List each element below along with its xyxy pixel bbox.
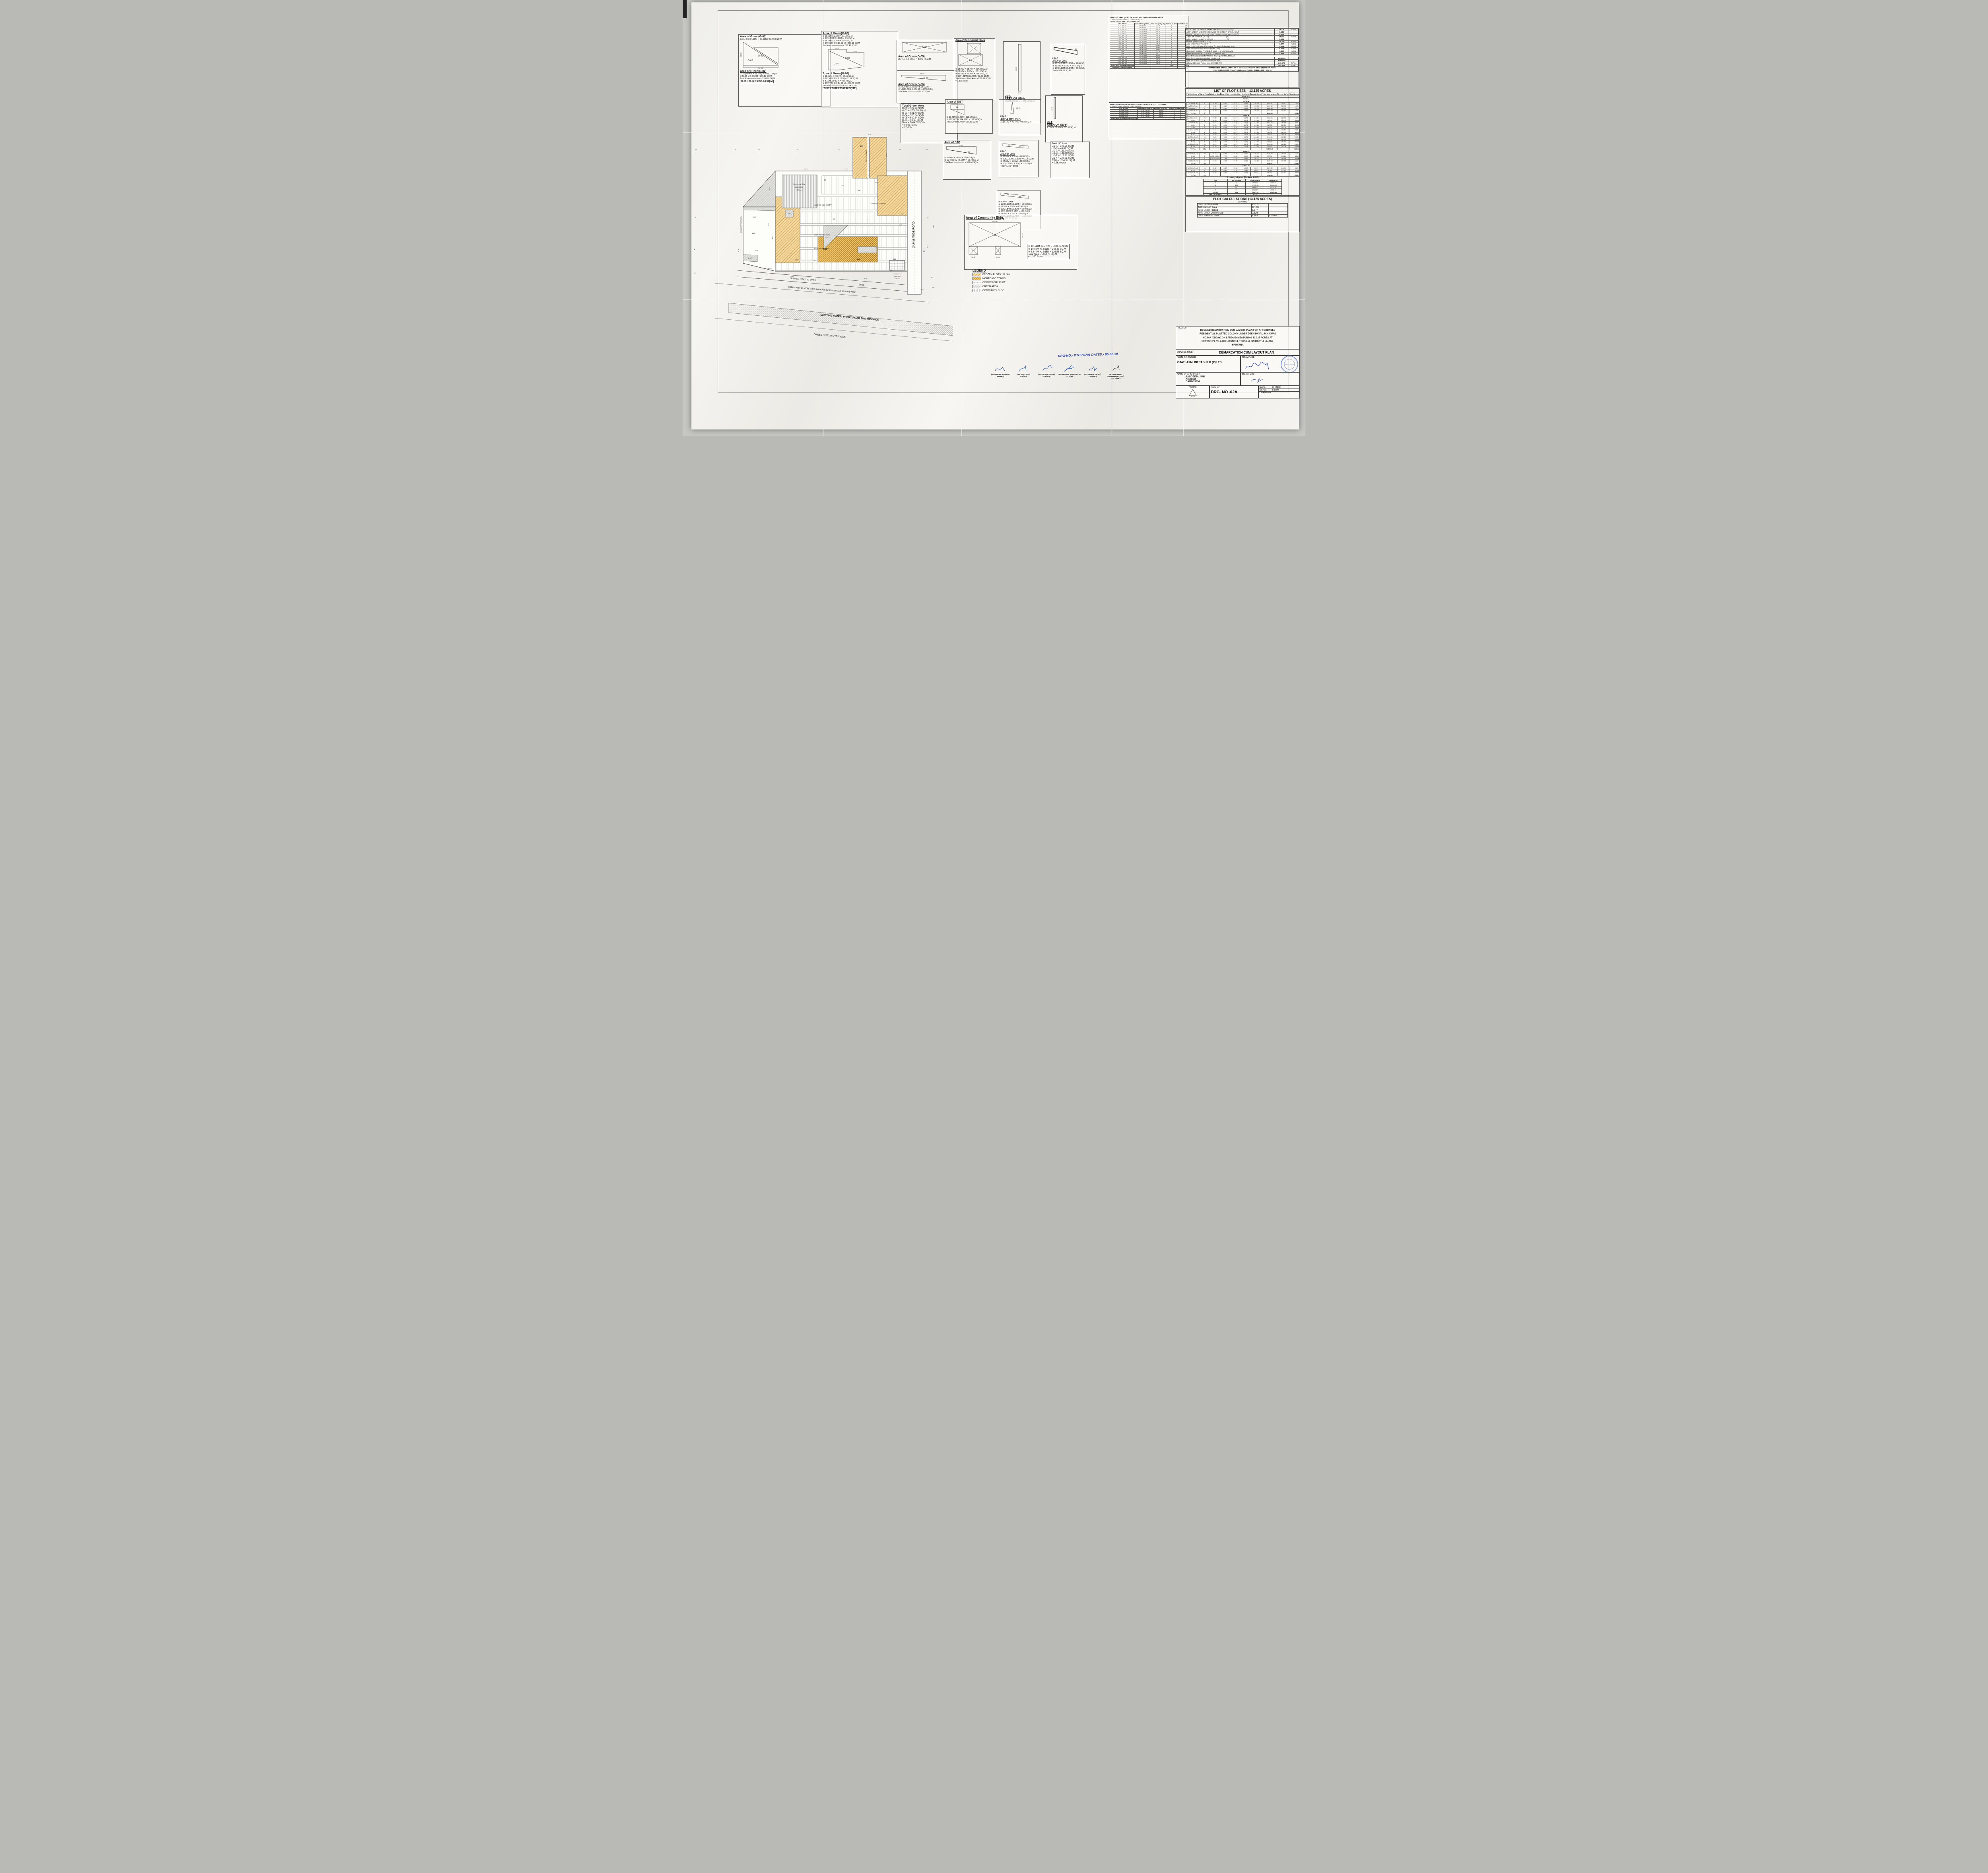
plan-label: 5	[695, 216, 697, 218]
legend-label: MORTGAGE 37 NOS.	[982, 278, 1006, 280]
g05-diagram: G-05	[898, 41, 950, 54]
signatory-role: CTP(HR.)	[1081, 375, 1104, 377]
mortgaged-table: S.No of PlotsSize of Plots (in MTS.)Plot…	[1110, 107, 1188, 120]
g03-title: Area of Green(G-03)	[823, 32, 897, 35]
plot-calculations-panel: PLOT CALCULATIONS (13.125 ACRES) (In Acr…	[1185, 196, 1300, 232]
plan-label: 14/2	[857, 258, 860, 260]
svg-text:36.84: 36.84	[959, 145, 963, 146]
green-g03-g04-annotation: Area of Green(G-03) ① 19.01M X 2.64M = 5…	[821, 31, 898, 107]
frozen-swatch	[973, 273, 981, 276]
plan-label: 8/1	[829, 203, 832, 205]
commercial-block-annotation: Area of Commercial Block 01 03 ① 18.90M …	[954, 38, 995, 101]
plan-label: 6 KARAM REVENUE RASTA	[740, 216, 742, 233]
text-line: Total =123.04 SQ.M	[1000, 165, 1037, 167]
plan-label: 1.350 Acres	[796, 189, 803, 191]
drawing-title-label: DRAWING TITLE:-	[1177, 351, 1194, 354]
ud-f-annotation: 86.55 UD-F AREA OF UD-F 2.75M X 86.55M =…	[1045, 95, 1083, 142]
ud-a-diagram: 60.35 5.03	[1005, 43, 1036, 94]
legend-item-mortgage: MORTGAGE 37 NOS.	[973, 277, 1024, 280]
green-swatch	[973, 285, 981, 288]
community-bldg-annotation: Area of Community Bldg. 01 02 03 111.48 …	[964, 215, 1077, 270]
svg-text:02: 02	[1075, 48, 1077, 50]
text-line: Total Services Area = 239.86 SQ.M	[947, 121, 991, 123]
ud-c-annotation: 0103 UD-C AREA OF UD-C ① 10.05M X 3.57M)…	[999, 140, 1039, 177]
g03-g04-diagram: G-03 G-04 19.01 33.69	[823, 47, 870, 72]
commercial-swatch	[973, 281, 981, 284]
signature-squiggle	[1062, 364, 1077, 373]
text-line: REVISED DEMARCATION CUM LAYOUT PLAN FOR …	[1176, 329, 1299, 332]
plot-summary-table: TypeNo. of PlotsArea in Sq.mArea Sq.ydA3…	[1203, 179, 1282, 196]
stp-diagram: 01 02 36.84	[944, 144, 980, 156]
phery-road-band	[728, 303, 953, 336]
svg-text:45.70: 45.70	[1021, 233, 1023, 238]
plan-label: UGT	[788, 213, 791, 215]
approval-signatory: (OM PARKASH)ATP(HQ)	[1012, 364, 1035, 389]
plan-label: 25	[695, 149, 697, 151]
svg-text:03: 03	[1019, 145, 1021, 147]
plan-label: 6/2	[899, 224, 902, 226]
drawn-by-label: DRAWN BY.	[1259, 392, 1299, 394]
plan-label: GREEN BELT 30 MTRS WIDE	[813, 333, 846, 338]
plan-label: 21	[926, 149, 928, 151]
green-g06-annotation: G-06 33.20 Area of Green(G-06) ① 33.20 M…	[897, 71, 958, 103]
date-label: DATE.	[1260, 386, 1266, 389]
signatory-role: AD(HQ)	[989, 375, 1012, 377]
legend: LEGEND FROZEN PLOTS 119 Nos. MORTGAGE 37…	[971, 268, 1025, 301]
text-line: = 0.263 Acres	[1052, 162, 1088, 164]
ud-f-title: AREA OF UD-F	[1047, 124, 1081, 126]
plan-label: 13/1	[825, 236, 829, 238]
svg-text:G-06: G-06	[924, 77, 928, 80]
mortgaged-area-table: MORTGAGED AREA (15 %) OF TOTAL SALEABLE …	[1109, 103, 1188, 139]
approval-signatory: (K. MAKRAND PANDURANG, IAS)DTCP(HR.)	[1104, 364, 1127, 389]
mortgage-swatch	[973, 277, 981, 280]
table-row: S.No of PlotsSize of Plots (in MTS.)Plot…	[1110, 108, 1189, 110]
plan-label: 9.0 METER WIDE ROAD	[814, 234, 830, 236]
company-stamp: VIJAYLAXMI INFRABUILD PRIVATE LIMITED ★ …	[1280, 355, 1299, 373]
svg-text:G-04: G-04	[834, 63, 839, 65]
commercial-diagram: 01 03	[955, 42, 989, 67]
plan-label: 9.0 METER WIDE ROAD	[814, 204, 830, 206]
plan-label: 12/2	[795, 259, 799, 261]
scanned-layout-plan-sheet: 25581525212223252110/110/211/111/2101120…	[683, 0, 1305, 436]
g02-title: Area of Green(G-02)	[740, 70, 829, 73]
plan-label: 21	[932, 286, 934, 288]
plan-label: 1320.19 SQ.M	[894, 276, 901, 277]
stp-annotation: Area of STP 01 02 36.84 ① 36.84M X 6.45M…	[943, 140, 991, 180]
plan-label: COMMERCIAL	[893, 273, 901, 275]
plan-label: 3/2	[841, 185, 844, 187]
plan-label: 57.06	[765, 273, 768, 275]
g05-formula: 35.45M X 14.65M = 519.34 SQ.M	[898, 58, 956, 60]
total-ud-area-annotation: Total UD Area UD-A = 303.56 SQ.MUD-B = 4…	[1050, 142, 1090, 178]
architect-label: NAME OF ARCHITECT	[1177, 373, 1239, 375]
plan-label: WIDE	[859, 284, 865, 286]
plan-label: 8.0 METER WIDE ROAD	[814, 248, 830, 249]
architect-lines: SANGEETA JAINArchitectCA/90/13234	[1186, 376, 1240, 383]
svg-text:33.69: 33.69	[853, 51, 858, 52]
text-line: ① 111.48M X45.70M = 5094.64 SQ.M	[1028, 245, 1068, 248]
plan-label: 111.48	[804, 168, 808, 170]
plan-label: 22	[797, 149, 799, 151]
text-line: YOJNA (DDJAY) ON LAND AD-MEASURING 13.12…	[1176, 336, 1299, 340]
table-row: Area under Commercial0.326	[1198, 212, 1287, 215]
commercial-lines: ① 18.90M X 18.74M = 354.19 SQ.M② 38.02M …	[955, 68, 994, 82]
architect-signature	[1249, 376, 1269, 384]
g06-title: Area of Green(G-06)	[898, 83, 956, 86]
signature-squiggle	[1039, 364, 1054, 373]
approval-signatory: (VIJENDER SINGH)DTP(HQ)	[1035, 364, 1058, 389]
g01-diagram: G-01 G-02 58.06 55.32	[740, 41, 784, 69]
plan-label: 10/1	[753, 216, 756, 218]
plot-sizes-table-panel: LIST OF PLOT SIZES – 13.125 ACRES Plot N…	[1185, 88, 1300, 196]
plan-label: 4/2	[875, 182, 878, 184]
table-row: PROPOSED FREEZED AREA50.31%	[1110, 67, 1189, 69]
plan-label: 62.03	[920, 289, 924, 291]
plot-sizes-title: LIST OF PLOT SIZES – 13.125 ACRES	[1186, 89, 1299, 93]
owner-label: NAME OF OWNER	[1177, 356, 1239, 359]
svg-text:58.06: 58.06	[758, 67, 763, 69]
signature-squiggle	[1085, 364, 1100, 373]
svg-text:02: 02	[958, 111, 961, 113]
svg-text:19.01: 19.01	[835, 47, 839, 49]
svg-text:01: 01	[1058, 48, 1060, 50]
freezed-table: S.No of PlotsSize of Plots (in MTS.)Plot…	[1110, 23, 1188, 69]
title-block: PROJECT:- REVISED DEMARCATION CUM LAYOUT…	[1176, 326, 1300, 398]
stp-title: Area of STP	[944, 141, 990, 144]
table-row: Area under Plotted6.377	[1198, 209, 1287, 212]
green-g01-g02-annotation: Area of Green(G-01) G-01=1/2(34.09M X 30…	[738, 34, 831, 107]
plan-label: 11/1	[755, 250, 758, 252]
svg-text:33.20: 33.20	[920, 73, 924, 75]
drg-label: DRG. NO.	[1211, 387, 1257, 389]
signatory-name: (K. MAKRAND PANDURANG, IAS)	[1104, 373, 1127, 377]
svg-text:03: 03	[997, 250, 999, 252]
total-ud-lines: UD-A = 303.56 SQ.MUD-B = 43.82 SQ.MUD-C …	[1052, 145, 1088, 164]
community-diagram: 01 02 03 111.48 45.70 16.62 8.64	[966, 220, 1025, 259]
svg-text:55.32: 55.32	[740, 52, 742, 57]
text-line: ② 16.62M X14.65M = 243.48 SQ.M	[1028, 248, 1068, 251]
legend-label: COMMUNITY BLDG.	[982, 289, 1005, 292]
legend-label: GREEN AREA	[982, 286, 998, 288]
svg-text:60.35: 60.35	[1015, 66, 1017, 71]
svg-text:8.64: 8.64	[996, 256, 1000, 258]
scale-label: SCALE.	[1260, 389, 1268, 391]
drawing-title: DEMARCATION CUM LAYOUT PLAN	[1194, 351, 1299, 354]
community-lines: ① 111.48M X45.70M = 5094.64 SQ.M② 16.62M…	[1027, 244, 1070, 259]
plan-label: 25	[899, 149, 901, 151]
svg-text:16.62: 16.62	[971, 256, 976, 258]
scheme-table: PLOT AREA OF NEW SCHEME APPLIED---------…	[1186, 28, 1299, 67]
owner-name: VIJAYLAXMI INFRABUILD (P) LTD.	[1177, 361, 1239, 364]
architect-signature-label: SIGNATURE	[1242, 373, 1299, 375]
text-line: HARYANA	[1176, 344, 1299, 347]
plan-label: 20	[931, 276, 933, 278]
g06-lines: ① 33.20 M X 0.26 M) = 8.63 SQ.M② 1/2(33.…	[898, 86, 956, 93]
ud-d-diagram: 0103	[998, 191, 1033, 200]
plan-label: 67.06	[790, 276, 794, 277]
g03-lines: ① 19.01M X 2.64M = 50.19 SQ.M② 1/2(4.33M…	[823, 35, 897, 47]
signature-squiggle	[1108, 364, 1123, 373]
legend-item-green: GREEN AREA	[973, 285, 1024, 288]
table-row: S.No of PlotsSize of Plots (in MTS.)Plot…	[1110, 23, 1189, 25]
plan-label: 9.0 M. WIDE ROAD	[866, 150, 867, 162]
svg-text:03: 03	[969, 60, 972, 62]
legend-item-commercial: COMMERCIAL PLOT	[973, 281, 1024, 284]
plan-label: 4/1	[858, 189, 860, 191]
ud-f-formula: 2.75M X 86.55M = 238.01 SQ.M	[1047, 126, 1081, 129]
plan-label: 11	[923, 250, 925, 252]
svg-text:02: 02	[968, 151, 970, 153]
scheme-area-table: PLOT AREA OF NEW SCHEME APPLIED---------…	[1185, 28, 1299, 87]
ud-b-annotation: 21.17 UD-B AREA OF UD-B 1/2(4.14M X 21.1…	[999, 99, 1041, 135]
plan-label: 54//	[823, 248, 827, 251]
plot-calc-table: Total Scheme Area13.125Net Planned Area1…	[1197, 203, 1287, 218]
legend-label: FROZEN PLOTS 119 Nos.	[982, 274, 1011, 276]
text-line: Total Area -------------- = 91.13 SQ.M	[898, 91, 956, 93]
plan-label: 15	[694, 272, 696, 274]
ugt-title: Area of UGT	[947, 101, 991, 103]
signature-squiggle	[993, 364, 1008, 373]
site-plan: 25581525212223252110/110/211/111/2101120…	[691, 131, 953, 348]
green-g05-annotation: G-05 Area of Green(G-05) 35.45M X 14.65M…	[897, 40, 958, 71]
plan-label: 25	[735, 149, 737, 151]
svg-text:86.55: 86.55	[1051, 107, 1053, 111]
stp-lines: ① 36.84M X 6.45M = 237.62 SQ.M② 1/2 (36.…	[944, 157, 990, 164]
plan-label: 1-KARAM REVENUE RASTA	[870, 202, 886, 204]
community-title: Area of Community Bldg.	[966, 216, 1076, 220]
svg-text:02: 02	[972, 250, 975, 252]
plan-label: 35.21	[772, 236, 773, 239]
ud-b-formula: 1/2(4.14M X 21.17M) =43.82 SQ.M	[1000, 121, 1039, 123]
plan-label: 15/2	[893, 258, 897, 260]
ugt-lines: ① 16.35M X 7.31M = 119.52 SQ.M② 1/2(16.3…	[947, 116, 991, 123]
plan-label: 3.35	[933, 225, 934, 228]
text-line: Total Area ---------------- = 333.40 SQ.…	[944, 161, 990, 164]
svg-text:01: 01	[959, 148, 961, 150]
table-row: AREA IN ACRES6.377	[1203, 194, 1282, 196]
g02-lines: ① 1/2(58.06M X 51.78M) = 1503.17 SQ.M② 5…	[740, 73, 829, 80]
svg-text:01: 01	[994, 235, 996, 237]
approval-signatory: (JITENDER SIHAG)CTP(HR.)	[1081, 364, 1104, 389]
signatory-role: ATP(HQ)	[1012, 375, 1035, 377]
plan-label: 47.14	[926, 245, 928, 248]
plan-label: STP	[748, 258, 751, 259]
signatory-role: DTP(HQ)	[1035, 375, 1058, 377]
plan-label: 66.33	[767, 223, 769, 226]
g01-g02-total: G-01 + G-02 = 2231.64 SQ.M	[740, 80, 774, 83]
drg-no: DRG. NO .02A	[1211, 390, 1257, 394]
scan-artifact	[683, 0, 687, 18]
plan-label: 47//	[860, 146, 864, 148]
owner-signature	[1244, 360, 1276, 372]
legend-title: LEGEND	[973, 269, 1024, 272]
plan-label: Community Bldg.	[793, 183, 805, 185]
table-row: OR594.469P.P.H.	[1186, 64, 1299, 67]
svg-text:NEW DELHI: NEW DELHI	[1285, 363, 1294, 365]
g01-title: Area of Green(G-01)	[740, 35, 829, 38]
scheme-foot2: PROPOSED GREEN AREA = 0.985 Acres =0.985…	[1186, 69, 1299, 72]
svg-text:G-05: G-05	[922, 47, 927, 49]
plan-label: SERVICE ROAD 12 MTRS	[790, 277, 816, 282]
community-swatch	[973, 289, 981, 292]
plan-label: 8/2	[833, 218, 835, 220]
date-value: 09 /2018	[1272, 386, 1280, 389]
svg-text:03: 03	[1019, 195, 1021, 197]
text-line: = 0.326 Acres	[955, 80, 994, 82]
svg-text:01: 01	[973, 48, 975, 50]
text-line: ③ 8.644M X14.65M = 126.58 SQ.M	[1028, 251, 1068, 253]
north-arrow-icon	[1188, 389, 1198, 397]
table-row: TOTAL AREA OF MORTGAGED PLOTS373903.21	[1110, 118, 1189, 120]
text-line: Total = 216.92 SQ.M	[1052, 70, 1083, 72]
g05-title: Area of Green(G-05)	[898, 55, 956, 58]
svg-text:01: 01	[1008, 144, 1010, 146]
legend-item-frozen: FROZEN PLOTS 119 Nos.	[973, 273, 1024, 276]
svg-text:01: 01	[956, 106, 958, 108]
plan-label: 55.15	[738, 249, 740, 252]
ud-e-lines: ① 1/2(36.83M X 5.26M) = 96.86 SQ.M② 36.8…	[1052, 62, 1083, 72]
plan-label: 60.35	[769, 187, 771, 190]
plan-label: 53.04	[886, 153, 887, 157]
approval-signatures-row: (NARINDER KUMAR)AD(HQ)(OM PARKASH)ATP(HQ…	[989, 364, 1127, 389]
freezed-area-table: FREEZED AREA (50 %) OF TOTAL SALEABLE PL…	[1109, 16, 1188, 103]
table-row: TOTAL232168.192593.16	[1186, 174, 1300, 177]
project-label: PROJECT:-	[1177, 327, 1187, 329]
plan-label: 10/2	[752, 232, 755, 234]
community-building-plot	[782, 175, 817, 208]
svg-text:G-02: G-02	[747, 60, 753, 62]
table-row: Plot No. From toNo of PlotsWidth in Mts.…	[1186, 93, 1300, 95]
plan-label: 6/1	[901, 213, 904, 215]
signatory-role: DTCP(HR.)	[1104, 377, 1127, 379]
approval-signatory: (NARINDER KUMAR)AD(HQ)	[989, 364, 1012, 389]
svg-text:G-01: G-01	[758, 55, 763, 57]
plan-label: 13/2	[812, 260, 816, 262]
ud-c-diagram: 0103	[1000, 141, 1032, 150]
svg-text:5.03: 5.03	[1018, 92, 1022, 94]
legend-item-community: COMMUNITY BLDG.	[973, 289, 1024, 292]
ud-e-annotation: 0102 UD-E AREA OF UD-E ① 1/2(36.83M X 5.…	[1051, 44, 1085, 95]
plan-label: 16/1/1	[890, 270, 894, 272]
plan-label: 8	[694, 248, 695, 250]
plan-label: 67.06	[868, 134, 871, 136]
g04-lines: ① 19.01 M X 2.98 M = 56.65 SQ.M② 1/2(10.…	[823, 75, 897, 87]
plan-label: 23	[839, 149, 841, 151]
text-line: SECTOR-29, VILLAGE JAUNDHI, TEHSIL & DIS…	[1176, 340, 1299, 344]
plan-label: 3/1	[824, 179, 826, 181]
plan-label: 10	[927, 216, 929, 218]
g03-g04-total: G-03 + G-04 = 1141.94 SQ.M	[823, 87, 856, 90]
svg-text:G-03: G-03	[845, 57, 850, 60]
ugt-annotation: Area of UGT 01 02 ① 16.35M X 7.31M = 119…	[945, 99, 993, 134]
plan-label: = 0.326 Acres	[894, 278, 901, 280]
plan-label: 22.63	[845, 168, 848, 170]
ud-e-diagram: 0102	[1052, 45, 1080, 57]
scale-value: 1:1000	[1272, 389, 1279, 391]
table-row: Total Saleable Area6.70352.41%	[1198, 215, 1287, 218]
signatory-role: STP(M)	[1058, 375, 1081, 377]
signature-squiggle	[1016, 364, 1031, 373]
plot-sizes-table: Plot No. From toNo of PlotsWidth in Mts.…	[1186, 93, 1300, 177]
plan-label: 5464.70 SQ.M	[795, 187, 804, 188]
text-line: = 1.350 Acres	[1028, 256, 1068, 258]
plan-label: 67.06	[864, 278, 867, 279]
project-lines: REVISED DEMARCATION CUM LAYOUT PLAN FOR …	[1176, 326, 1299, 347]
text-line: RESIDENTIAL PLOTTED COLONY UNDER DEEN DA…	[1176, 332, 1299, 336]
plan-label: 24.0 M. WIDE ROAD	[912, 221, 915, 248]
g06-diagram: G-06 33.20	[898, 72, 950, 82]
legend-label: COMMERCIAL PLOT	[982, 282, 1006, 284]
ud-c-lines: ① 10.05M X 3.57M) =35.88 SQ.M② 1/2(22.99…	[1000, 155, 1037, 167]
text-line: CA/90/13234	[1186, 381, 1240, 383]
svg-text:21.17: 21.17	[1016, 107, 1021, 109]
ugt-diagram: 01 02	[947, 103, 975, 115]
table-row: Net Planned Area12.789	[1198, 206, 1287, 209]
table-row: Total Scheme Area13.125	[1198, 204, 1287, 206]
commercial-plot	[889, 260, 905, 270]
plan-label: 21	[758, 149, 760, 151]
svg-text:111.48: 111.48	[992, 221, 998, 223]
plot-calc-title: PLOT CALCULATIONS (13.125 ACRES)	[1186, 197, 1299, 201]
g04-title: Area of Green(G-04)	[823, 72, 897, 75]
plan-label: MILK BOOTH	[765, 268, 773, 270]
ud-b-title: AREA OF UD-B	[1000, 118, 1039, 121]
ud-f-diagram: 86.55	[1047, 97, 1063, 120]
ud-b-diagram: 21.17	[1000, 101, 1024, 115]
svg-text:01: 01	[1007, 193, 1009, 195]
approval-signatory: (DEVENDRA NIMBOKAR)STP(M)	[1058, 364, 1081, 389]
